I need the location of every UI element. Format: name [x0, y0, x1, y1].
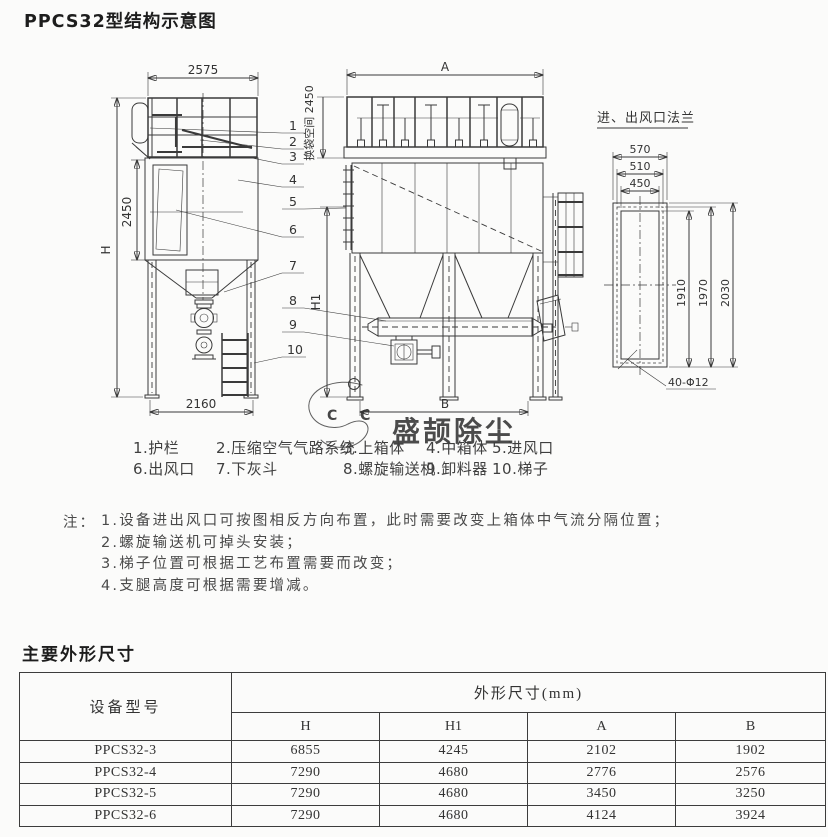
value-cell: 6855 — [232, 741, 380, 763]
callout-9: 9 — [289, 317, 297, 332]
part-item: 4.中箱体 — [426, 437, 488, 458]
note-line: 4.支腿高度可根据需要增减。 — [101, 576, 670, 598]
note-line: 2.螺旋输送机可掉头安装； — [101, 533, 670, 555]
table-col-A: A — [528, 713, 676, 741]
callout-4: 4 — [289, 172, 297, 187]
dim-flange-570: 570 — [630, 143, 651, 156]
value-cell: 1902 — [676, 741, 826, 763]
value-cell: 7290 — [232, 784, 380, 806]
callout-7: 7 — [289, 258, 297, 273]
part-item: 5.进风口 — [492, 437, 554, 458]
part-item: 6.出风口 — [133, 458, 195, 479]
callout-6: 6 — [289, 222, 297, 237]
parts-list-row-2: 6.出风口 7.下灰斗 8.螺旋输送机 9.卸料器 10.梯子 — [0, 458, 828, 478]
dim-flange-510: 510 — [630, 160, 651, 173]
table-col-H: H — [232, 713, 380, 741]
value-cell: 4124 — [528, 805, 676, 827]
model-cell: PPCS32-5 — [20, 784, 232, 806]
model-cell: PPCS32-3 — [20, 741, 232, 763]
part-item: 8.螺旋输送机 — [343, 458, 436, 479]
value-cell: 7290 — [232, 762, 380, 784]
dim-front-base: B — [441, 397, 449, 411]
callout-8: 8 — [289, 293, 297, 308]
value-cell: 2102 — [528, 741, 676, 763]
part-item: 7.下灰斗 — [216, 458, 278, 479]
notes-lines: 1.设备进出风口可按图相反方向布置，此时需要改变上箱体中气流分隔位置； 2.螺旋… — [101, 511, 670, 597]
model-cell: PPCS32-4 — [20, 762, 232, 784]
table-row: PPCS32-3 6855 4245 2102 1902 — [20, 741, 826, 763]
structure-diagram: 2575 H 2450 2160 1 2 3 4 5 6 7 8 9 10 — [0, 40, 828, 452]
part-item: 1.护栏 — [133, 437, 179, 458]
table-col-H1: H1 — [380, 713, 528, 741]
notes-prefix: 注： — [63, 511, 101, 597]
note-line: 3.梯子位置可根据工艺布置需要而改变； — [101, 554, 670, 576]
dim-front-width: A — [441, 60, 450, 74]
flange-detail-title: 进、出风口法兰 — [597, 111, 695, 126]
table-row: PPCS32-6 7290 4680 4124 3924 — [20, 805, 826, 827]
section-title-dimensions: 主要外形尺寸 — [22, 640, 136, 665]
dim-left-height: 2450 — [120, 197, 134, 228]
table-header-model: 设备型号 — [20, 673, 232, 741]
bag-space-dimension: 换袋空间 2450 — [302, 85, 344, 161]
table-col-B: B — [676, 713, 826, 741]
table-header-group: 外形尺寸(mm) — [232, 673, 826, 713]
value-cell: 2776 — [528, 762, 676, 784]
page-title: PPCS32型结构示意图 — [24, 8, 217, 33]
callout-10: 10 — [287, 342, 303, 357]
dim-flange-2030: 2030 — [719, 279, 732, 307]
dim-leg-height: H1 — [309, 294, 323, 311]
part-item: 9.卸料器 — [426, 458, 488, 479]
notes-block: 注： 1.设备进出风口可按图相反方向布置，此时需要改变上箱体中气流分隔位置； 2… — [63, 511, 793, 597]
front-view — [343, 97, 583, 400]
value-cell: 2576 — [676, 762, 826, 784]
dim-left-width: 2575 — [188, 63, 219, 77]
value-cell: 4680 — [380, 805, 528, 827]
callout-1: 1 — [289, 118, 297, 133]
dim-left-base: 2160 — [186, 397, 217, 411]
dim-overall-height: H — [99, 245, 113, 254]
note-line: 1.设备进出风口可按图相反方向布置，此时需要改变上箱体中气流分隔位置； — [101, 511, 670, 533]
dim-flange-450: 450 — [630, 177, 651, 190]
part-item: 10.梯子 — [492, 458, 548, 479]
value-cell: 3250 — [676, 784, 826, 806]
callout-5: 5 — [289, 194, 297, 209]
dim-flange-1910: 1910 — [675, 279, 688, 307]
model-cell: PPCS32-6 — [20, 805, 232, 827]
value-cell: 4680 — [380, 762, 528, 784]
value-cell: 7290 — [232, 805, 380, 827]
dim-flange-holes: 40-Φ12 — [668, 376, 709, 389]
callout-2: 2 — [289, 134, 297, 149]
watermark-logo-letters: C C — [327, 408, 379, 424]
dim-flange-1970: 1970 — [697, 279, 710, 307]
value-cell: 4245 — [380, 741, 528, 763]
side-view — [132, 93, 258, 398]
part-item: 3.上箱体 — [343, 437, 405, 458]
callout-3: 3 — [289, 149, 297, 164]
value-cell: 4680 — [380, 784, 528, 806]
parts-list-row-1: 1.护栏 2.压缩空气气路系统 3.上箱体 4.中箱体 5.进风口 — [0, 437, 828, 457]
dim-bag-space: 换袋空间 2450 — [302, 85, 316, 161]
value-cell: 3924 — [676, 805, 826, 827]
table-row: PPCS32-4 7290 4680 2776 2576 — [20, 762, 826, 784]
table-row: PPCS32-5 7290 4680 3450 3250 — [20, 784, 826, 806]
flange-detail: 进、出风口法兰 570 510 450 1910 1970 2030 40-Φ1… — [597, 111, 738, 389]
part-item: 2.压缩空气气路系统 — [216, 437, 355, 458]
value-cell: 3450 — [528, 784, 676, 806]
dimensions-table: 设备型号 外形尺寸(mm) H H1 A B PPCS32-3 6855 424… — [19, 672, 826, 827]
front-view-dimensions: A H1 B — [309, 60, 543, 416]
